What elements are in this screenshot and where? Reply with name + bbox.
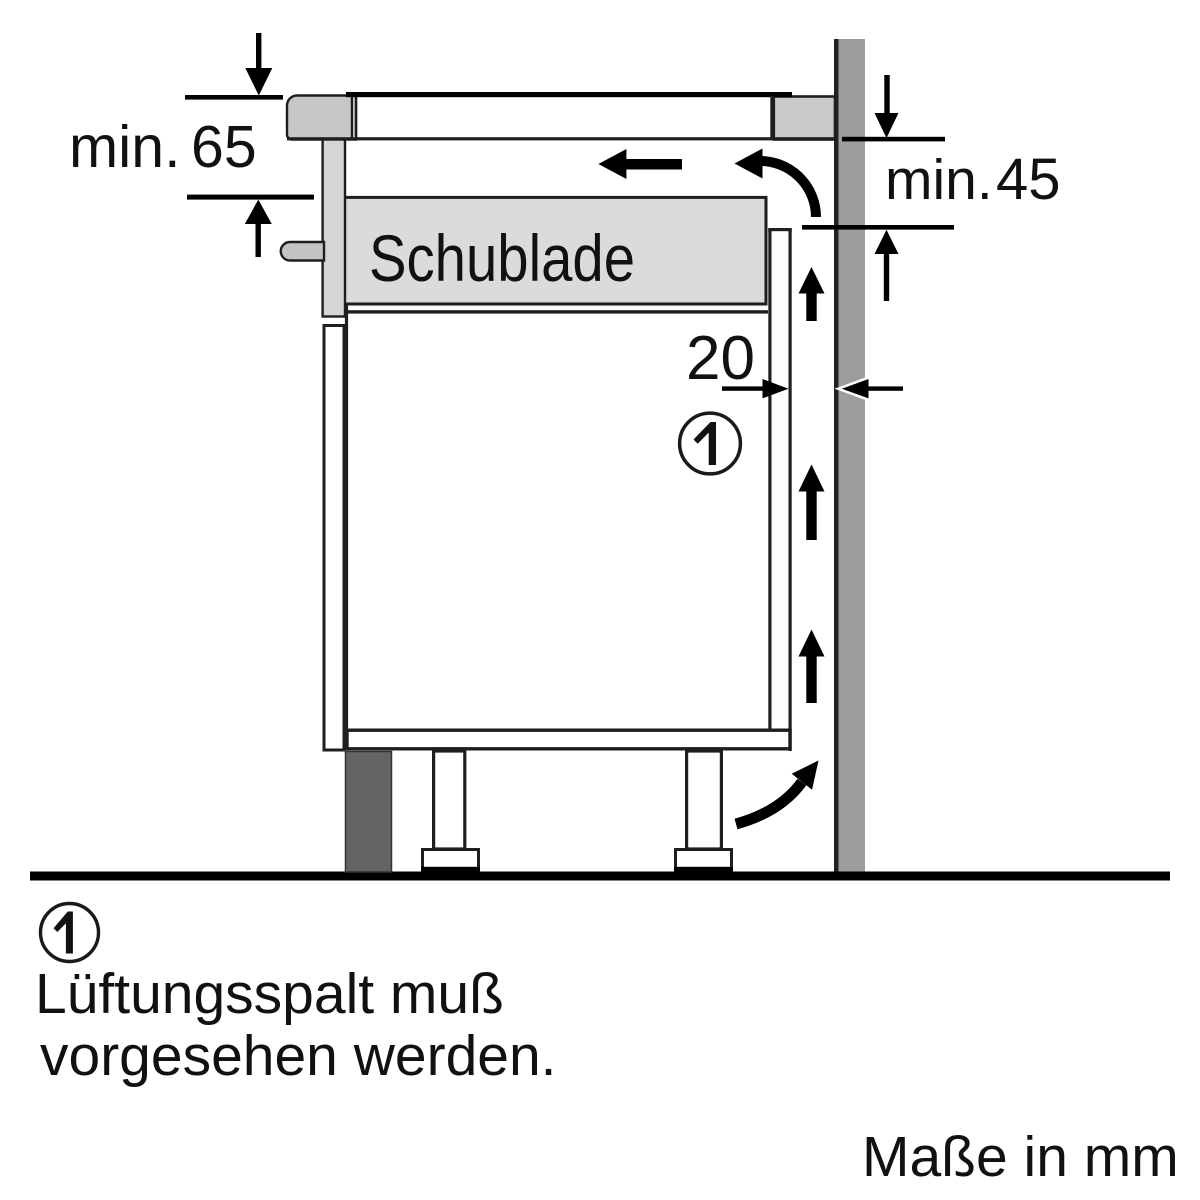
svg-text:65: 65 — [191, 114, 257, 180]
svg-text:Maße in mm: Maße in mm — [862, 1125, 1179, 1189]
svg-text:Schublade: Schublade — [369, 221, 635, 295]
svg-text:min.: min. — [885, 148, 993, 212]
svg-text:Lüftungsspalt muß: Lüftungsspalt muß — [35, 962, 504, 1026]
svg-text:45: 45 — [996, 147, 1061, 212]
svg-text:min.: min. — [69, 114, 180, 180]
svg-text:20: 20 — [686, 324, 755, 393]
svg-text:vorgesehen werden.: vorgesehen werden. — [40, 1024, 557, 1088]
